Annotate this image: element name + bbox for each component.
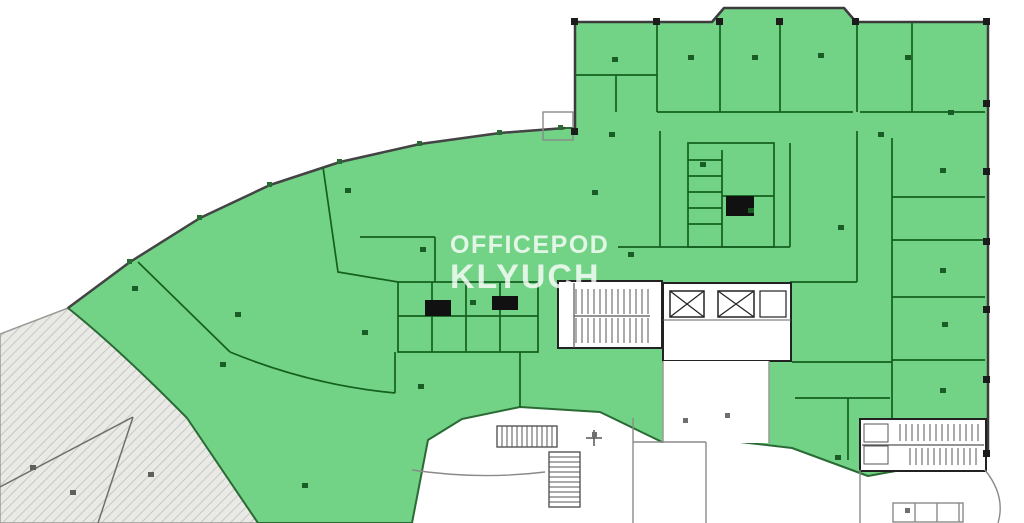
column-marker bbox=[571, 128, 578, 135]
elevator-machine-room bbox=[760, 291, 786, 317]
room-number-mark bbox=[418, 384, 424, 389]
window-tick bbox=[558, 125, 563, 130]
plumbing-fixture-2 bbox=[492, 296, 518, 310]
room-number-mark bbox=[302, 483, 308, 488]
room-number-mark bbox=[752, 55, 758, 60]
room-number-mark bbox=[235, 312, 241, 317]
room-number-mark bbox=[612, 57, 618, 62]
room-number-mark bbox=[818, 53, 824, 58]
column-marker bbox=[983, 306, 990, 313]
room-number-mark bbox=[878, 132, 884, 137]
stair-core-southeast bbox=[860, 419, 986, 471]
stair-se-landing-box-2 bbox=[864, 446, 888, 464]
core-corridor bbox=[663, 361, 769, 443]
column-marker bbox=[983, 450, 990, 457]
column-marker bbox=[983, 168, 990, 175]
room-number-mark bbox=[942, 322, 948, 327]
plumbing-fixture-1 bbox=[425, 300, 451, 316]
room-number-mark bbox=[838, 225, 844, 230]
window-tick bbox=[197, 215, 202, 220]
room-number-mark bbox=[948, 110, 954, 115]
column-marker bbox=[571, 18, 578, 25]
window-tick bbox=[267, 182, 272, 187]
window-tick bbox=[127, 259, 132, 264]
neighbor-label-mark bbox=[905, 508, 910, 513]
room-number-mark bbox=[905, 55, 911, 60]
neighbor-label-mark bbox=[725, 413, 730, 418]
room-number-mark bbox=[470, 300, 476, 305]
column-marker bbox=[852, 18, 859, 25]
room-number-mark bbox=[940, 388, 946, 393]
room-number-mark bbox=[132, 286, 138, 291]
window-tick bbox=[417, 141, 422, 146]
room-number-mark bbox=[420, 247, 426, 252]
window-tick bbox=[497, 130, 502, 135]
window-tick bbox=[337, 159, 342, 164]
neighbor-label-mark bbox=[683, 418, 688, 423]
room-number-mark bbox=[700, 162, 706, 167]
room-number-mark bbox=[609, 132, 615, 137]
room-number-mark bbox=[688, 55, 694, 60]
elevator-core bbox=[663, 283, 791, 361]
column-marker bbox=[716, 18, 723, 25]
column-marker bbox=[653, 18, 660, 25]
room-number-mark bbox=[592, 190, 598, 195]
neighbor-label-mark bbox=[592, 432, 597, 437]
stair-core-main bbox=[558, 281, 662, 348]
column-marker bbox=[983, 18, 990, 25]
column-marker bbox=[983, 100, 990, 107]
room-number-mark bbox=[345, 188, 351, 193]
room-number-mark bbox=[940, 268, 946, 273]
room-number-mark bbox=[748, 208, 754, 213]
terrace-label-mark bbox=[148, 472, 154, 477]
terrace-label-mark bbox=[70, 490, 76, 495]
corridor-floor bbox=[663, 361, 769, 443]
room-number-mark bbox=[220, 362, 226, 367]
floor-plan-page: OFFICEPOD KLYUCH bbox=[0, 0, 1024, 523]
room-number-mark bbox=[940, 168, 946, 173]
room-number-mark bbox=[362, 330, 368, 335]
floor-plan-canvas bbox=[0, 0, 1024, 523]
room-number-mark bbox=[835, 455, 841, 460]
column-marker bbox=[983, 376, 990, 383]
column-marker bbox=[983, 238, 990, 245]
terrace-label-mark bbox=[30, 465, 36, 470]
column-marker bbox=[776, 18, 783, 25]
room-number-mark bbox=[628, 252, 634, 257]
stair-se-landing-box-1 bbox=[864, 424, 888, 442]
